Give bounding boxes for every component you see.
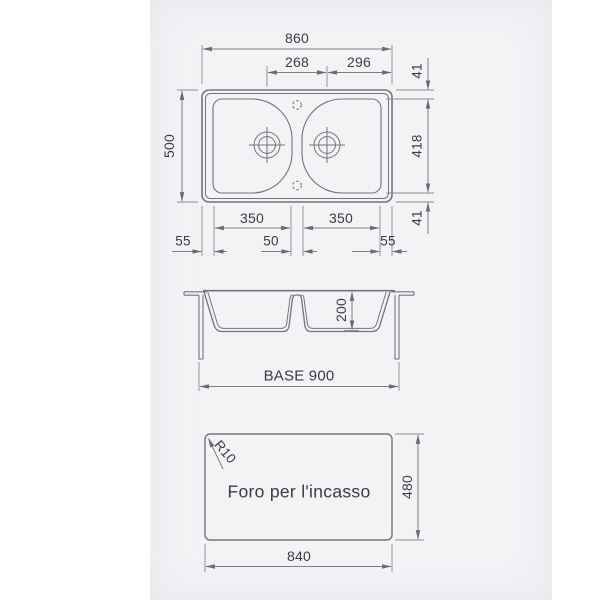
left-mount-bracket	[184, 292, 207, 359]
drawing-page: 860 268 296 500 41 418 41 350 350 55 50 …	[0, 0, 600, 600]
section-bowl-inner	[208, 292, 293, 328]
dim-268-label: 268	[285, 55, 309, 69]
dim-bottom-lines	[172, 206, 407, 256]
right-drain-icon	[309, 127, 345, 163]
cutout-caption: Foro per l'incasso	[228, 483, 371, 501]
dim-500-label: 500	[162, 134, 176, 158]
dim-55-right-label: 55	[380, 234, 395, 248]
sink-technical-drawing	[0, 0, 600, 600]
dim-860-label: 860	[285, 31, 309, 45]
dim-480-label: 480	[400, 475, 414, 499]
section-bowl-outer	[204, 292, 390, 332]
dim-350-left-label: 350	[240, 211, 264, 225]
dim-55-left-label: 55	[175, 234, 190, 248]
dim-base900-label: BASE 900	[264, 369, 335, 384]
left-drain-icon	[249, 127, 285, 163]
dim-41-bottom-label: 41	[410, 210, 424, 225]
sink-outer-rim	[202, 90, 392, 202]
top-view	[172, 45, 434, 256]
dim-418-label: 418	[410, 134, 424, 157]
dim-50-label: 50	[263, 234, 278, 248]
dim-41-top-label: 41	[410, 63, 424, 78]
dim-840-label: 840	[287, 549, 311, 563]
tap-hole-top-icon	[293, 101, 302, 110]
right-mount-bracket	[391, 292, 414, 359]
dim-200-label: 200	[334, 298, 348, 322]
dim-296-label: 296	[347, 55, 371, 69]
tap-hole-bottom-icon	[293, 181, 302, 190]
dim-350-right-label: 350	[329, 211, 353, 225]
dim-500-lines	[177, 90, 198, 202]
